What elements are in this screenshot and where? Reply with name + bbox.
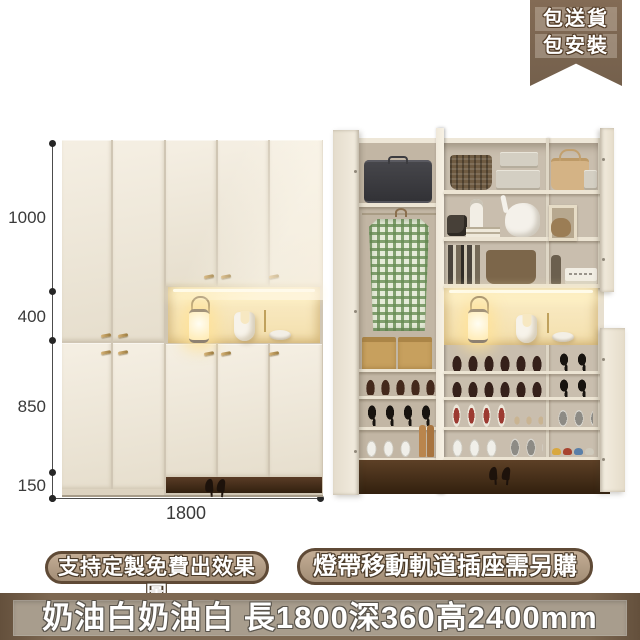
shoe-row [447,375,543,397]
boot [419,425,426,457]
shelf [444,237,604,241]
shoe-row [553,375,593,397]
promo-ribbon: 包送貨 包安裝 [530,0,622,86]
door-panel [62,140,111,341]
shoe-row [553,349,593,371]
door-panel [218,344,268,477]
high-heel [205,479,214,493]
storage-box [496,170,540,190]
book-stack [466,227,500,237]
drawer-box [362,337,396,372]
dim-label-400: 400 [2,307,46,327]
shoe-row [509,410,543,427]
teddy-bear [551,218,571,237]
open-door-left [333,130,359,495]
candlestick [264,310,266,332]
books [448,245,480,284]
shoe-row [447,431,503,457]
floor-shadow [338,460,610,494]
kids-shoe [585,448,594,455]
dim-label-1000: 1000 [2,208,46,228]
dimension-dot [49,337,56,344]
vertical-dimension-line [52,143,53,498]
hanger-hook [395,208,407,217]
boot [427,425,434,457]
cabinet-base-line [62,495,323,497]
shoe-row [505,431,543,457]
open-door-upper-right [600,128,614,292]
storage-box [584,170,597,190]
storage-basket [450,155,492,190]
u-vase [234,312,255,341]
u-vase [516,315,537,343]
high-heel [216,479,225,493]
trinket-dish [269,330,291,340]
kids-shoe [574,448,583,455]
hanging-shirt [369,219,429,331]
shelf [359,203,436,207]
high-heel [501,467,510,481]
open-cabinet [333,127,625,497]
small-bottle [551,255,561,284]
width-dimension-line [52,498,320,499]
storage-box [500,152,538,168]
door-panel [270,344,322,477]
tag-custom-service: 支持定製免費出效果圖 [45,551,269,584]
door-panel [62,343,111,489]
door-panel [166,344,216,477]
storage-basket [486,250,536,284]
drawer-box [398,337,432,372]
door-panel [113,343,164,489]
toe-kick-shadow [166,477,322,493]
dimension-dot [49,469,56,476]
door-panel [218,140,268,286]
shelf [359,369,436,372]
footer-text: 奶油白奶油白 長1800深360高2400mm [13,600,627,636]
shelf [359,396,436,399]
door-panel [113,140,164,341]
candlestick [547,313,549,333]
shelf [444,371,604,374]
camera [447,215,467,236]
ribbon-text-free-delivery: 包送貨 [535,7,617,31]
product-image: 包送貨 包安裝 1000 400 850 150 1800 [0,0,640,640]
labeled-box [565,268,597,284]
suitcase [364,160,432,203]
kids-shoe [563,448,572,455]
shoe-row [361,373,435,395]
dim-label-150: 150 [2,476,46,496]
dimension-dot [49,288,56,295]
shelf [444,190,604,194]
shoe-row [447,400,507,427]
closed-cabinet [62,140,323,497]
footer-panel: 奶油白奶油白 長1800深360高2400mm [13,600,627,636]
tag-right-text: 燈帶移動軌道插座需另購 [313,553,577,580]
dimension-dot [49,140,56,147]
dimension-dot [49,495,56,502]
table-lamp [189,309,209,343]
kids-shoe [552,448,561,455]
open-door-middle [436,128,444,494]
open-door-lower-right [600,328,625,492]
shoe-row [553,403,593,427]
led-light-strip [449,290,593,293]
shoe-row [447,349,543,371]
ribbon-text-free-install: 包安裝 [535,34,617,58]
door-panel [270,140,322,286]
tag-light-note: 燈帶移動軌道插座需另購 [297,548,593,585]
high-heel [489,467,498,481]
dim-label-850: 850 [2,397,46,417]
shoe-row [361,400,435,426]
table-lamp [468,309,488,343]
dim-label-1800: 1800 [146,503,226,524]
trinket-dish [552,332,574,342]
led-light-strip [173,289,315,292]
shoe-row [361,433,417,457]
shelf [444,427,604,430]
door-panel [166,140,216,286]
cat-figurine [505,203,540,237]
